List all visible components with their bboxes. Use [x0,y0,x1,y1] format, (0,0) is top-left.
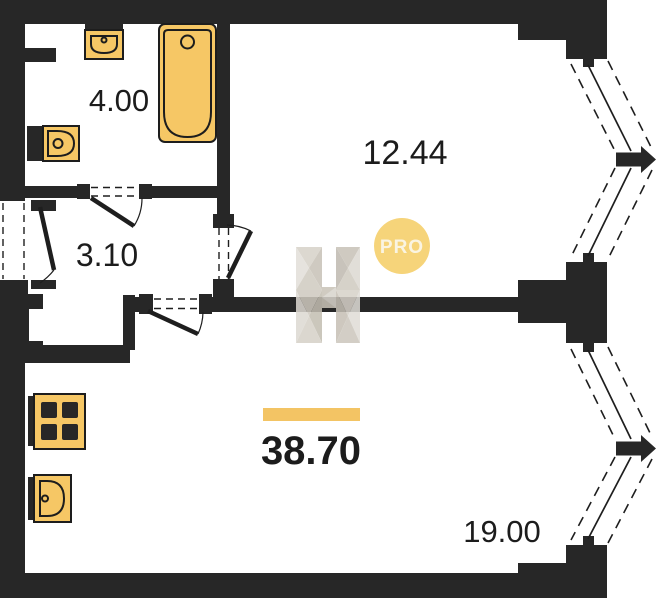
bathroom-door-leaf [91,198,134,226]
bathroom-door [77,184,152,226]
room-top-door-jamb-top [213,214,234,228]
bottom-wall [0,573,607,598]
entrance-door-leaf [40,207,54,270]
bay-window-bottom [571,343,656,545]
room-bottom-door-jamb-right [199,294,212,314]
window-pane [588,457,631,539]
pro-badge: PRO [374,218,430,274]
bottom-right-step [518,563,566,575]
niche-side [25,306,29,346]
total-area-bar [263,408,360,421]
top-left-stub [25,48,56,62]
stove-burner [62,424,78,440]
mid-right-pier [566,262,607,343]
room-top-door-jamb-bottom [213,279,234,297]
bottom-right-pier [566,545,607,575]
left-wall [0,0,25,598]
entrance-jamb-top [31,200,56,211]
bay-window-top [571,58,656,262]
entrance-door [0,200,56,296]
floor-plan: PRO 4.00 3.10 12.44 19.00 38.70 [0,0,657,600]
room-bottom-door [139,294,212,334]
bathroom-door-arc [134,198,142,226]
room-bottom-door-leaf [148,311,198,334]
entrance-jamb-bottom [0,280,28,296]
area-label-hallway: 3.10 [76,237,138,273]
area-label-room-bottom: 19.00 [463,514,541,549]
area-label-bathroom: 4.00 [89,83,149,118]
mid-right-step [518,280,566,323]
pro-badge-label: PRO [380,237,424,258]
window-pane [588,350,631,439]
window-sill-dash [608,61,652,149]
bathroom-bottom-wall-right [150,186,230,198]
stove-burner [41,424,57,440]
window-pane [588,65,631,151]
floor-plan-canvas: PRO 4.00 3.10 12.44 19.00 38.70 [0,0,657,600]
toilet-icon [27,126,79,161]
bathroom-door-jamb-right [139,184,152,199]
area-label-total: 38.70 [261,429,361,473]
wash-basin-icon [85,24,123,59]
room-bottom-door-opening [153,295,200,314]
room-top-door [213,214,251,297]
stove-burner [62,402,78,418]
entrance-jamb-nub [31,280,56,289]
bathroom-bottom-wall-left [25,186,80,198]
window-apex-joint [616,146,656,173]
top-wall [0,0,607,24]
area-label-room-top: 12.44 [362,134,447,172]
room-bottom-door-arc [198,312,203,334]
toilet-tank [27,126,43,161]
bathtub-body [159,24,216,142]
entrance-opening [0,201,27,280]
bathtub-icon [159,24,216,142]
stove-burner [41,402,57,418]
top-right-pier [566,24,607,59]
window-sill-dash [608,347,652,437]
window-sill-dash [608,170,652,259]
h-watermark-icon [296,247,360,343]
bathroom-door-jamb-left [77,184,90,199]
stove-body [34,394,85,449]
window-sill-dash [608,459,652,543]
window-apex-joint [616,435,656,462]
window-pane [588,168,631,256]
top-right-step [518,24,566,40]
kitchen-sink-icon [28,475,71,522]
stove-icon [28,394,85,449]
kitchen-wall [25,345,130,363]
